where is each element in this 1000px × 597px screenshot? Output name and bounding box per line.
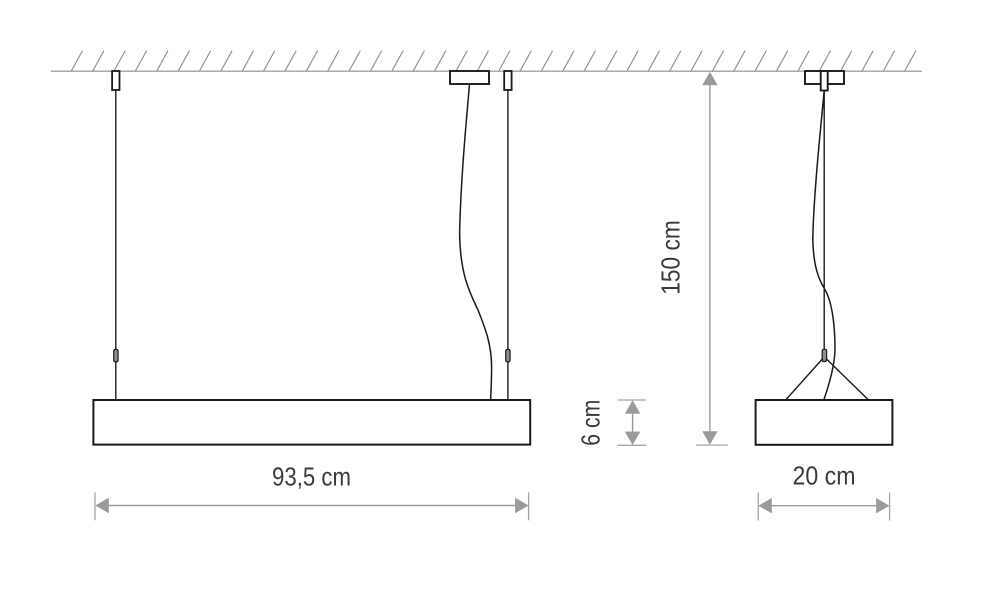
svg-text:6 cm: 6 cm [576,400,606,446]
svg-text:150 cm: 150 cm [656,220,686,295]
svg-text:93,5 cm: 93,5 cm [272,462,351,492]
svg-text:20 cm: 20 cm [793,461,856,491]
